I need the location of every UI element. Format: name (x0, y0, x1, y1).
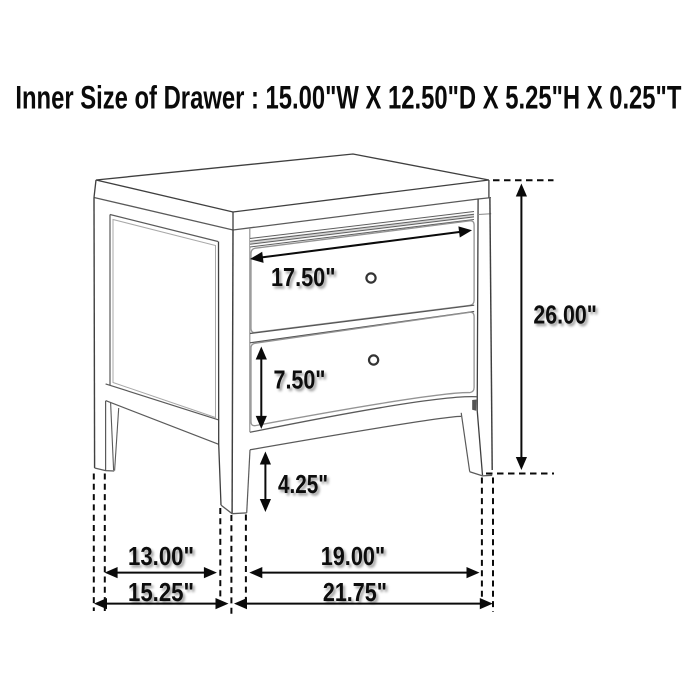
svg-text:15.25": 15.25" (128, 577, 194, 607)
svg-text:Inner Size of Drawer : 15.00"W: Inner Size of Drawer : 15.00"W X 12.50"D… (15, 80, 681, 116)
svg-text:17.50": 17.50" (271, 262, 336, 292)
svg-text:13.00": 13.00" (128, 541, 194, 571)
svg-text:21.75": 21.75" (323, 577, 387, 607)
svg-text:19.00": 19.00" (321, 541, 386, 571)
svg-text:26.00": 26.00" (533, 300, 597, 330)
svg-text:4.25": 4.25" (278, 469, 328, 499)
svg-text:7.50": 7.50" (274, 365, 326, 395)
